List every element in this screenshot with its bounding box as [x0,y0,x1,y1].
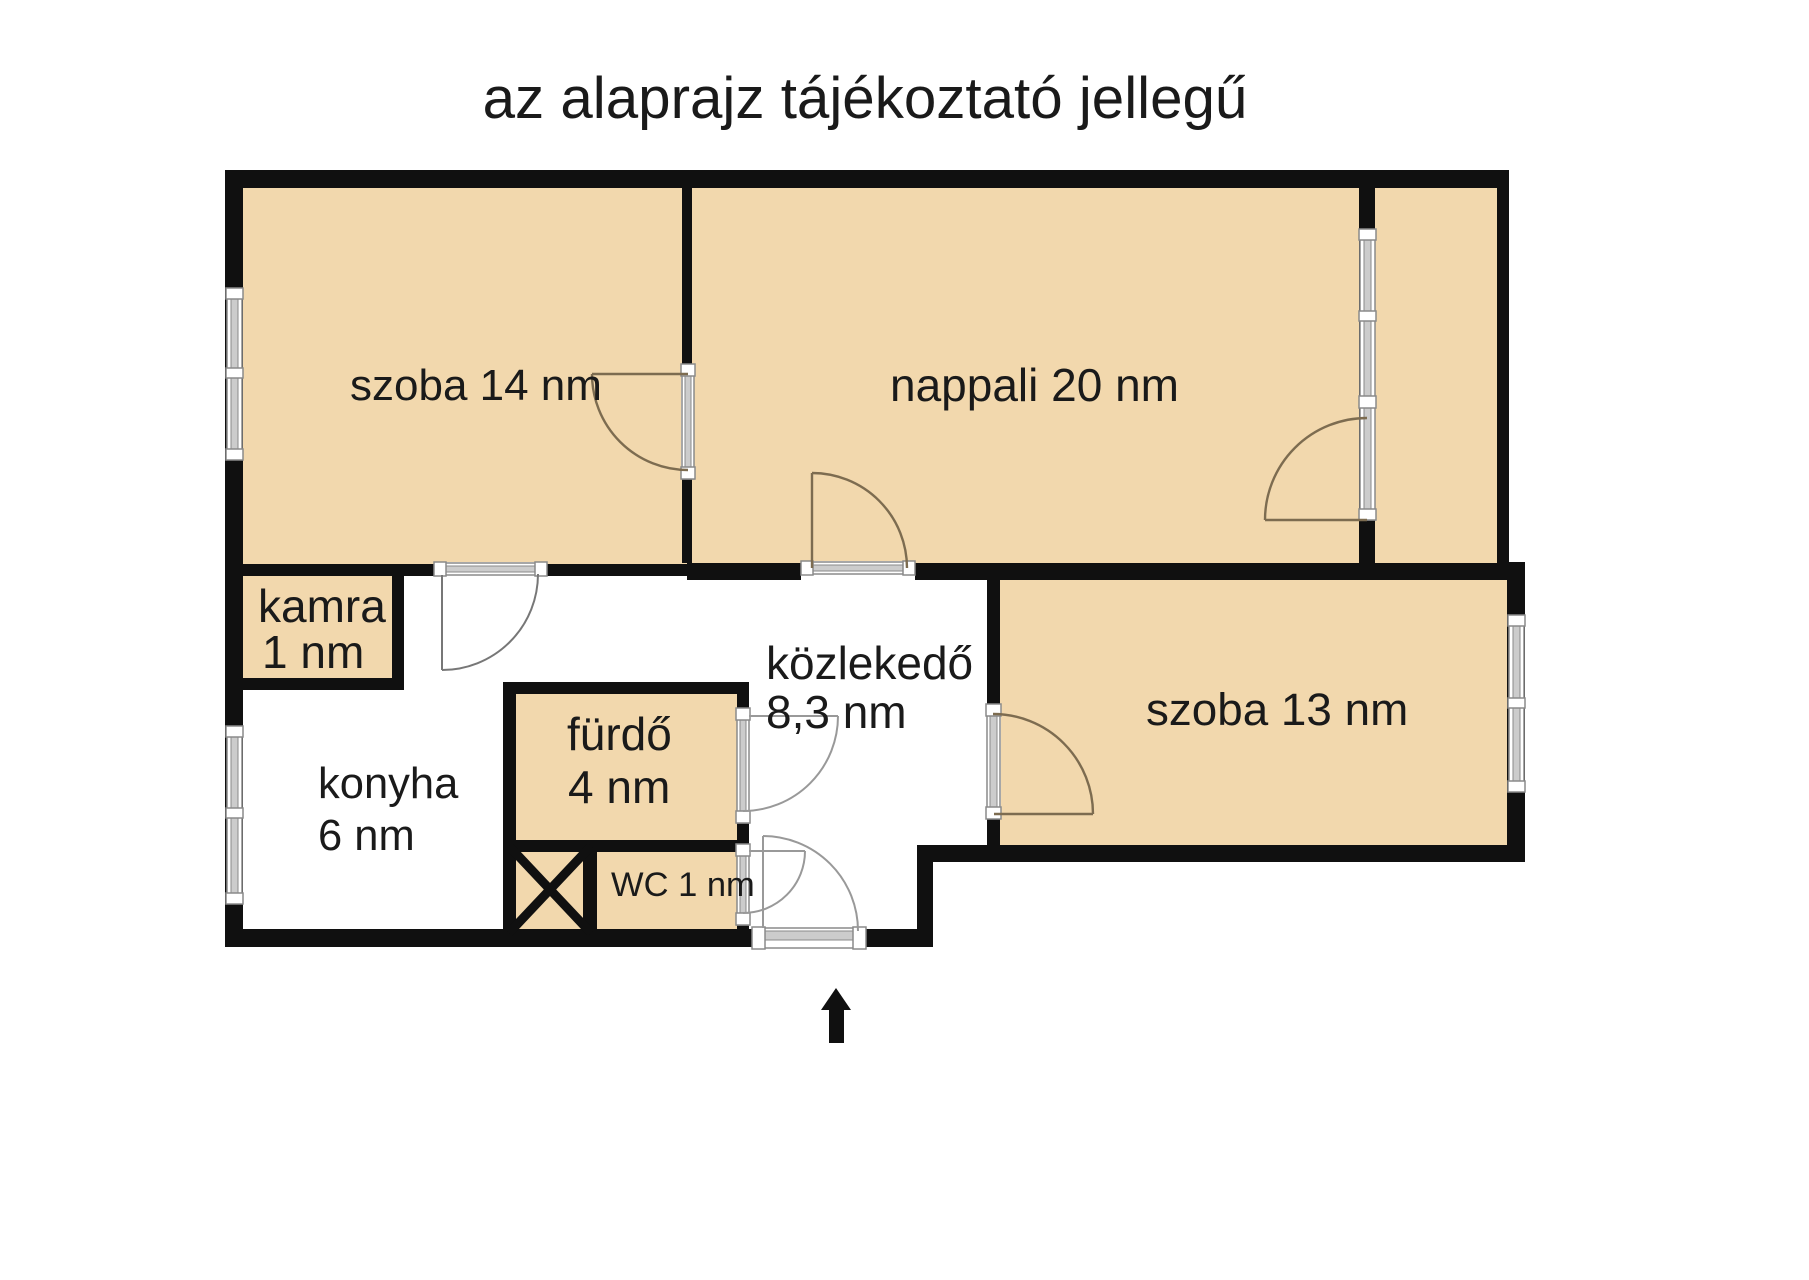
svg-text:WC 1 nm: WC 1 nm [611,866,755,904]
svg-text:kamra: kamra [258,580,386,632]
svg-text:8,3 nm: 8,3 nm [766,686,907,738]
svg-text:4 nm: 4 nm [568,761,670,813]
svg-text:1 nm: 1 nm [262,626,364,678]
svg-text:konyha: konyha [318,760,459,808]
svg-text:az alaprajz tájékoztató jelleg: az alaprajz tájékoztató jellegű [483,66,1248,131]
svg-text:nappali 20 nm: nappali 20 nm [890,359,1179,411]
svg-text:szoba 14 nm: szoba 14 nm [350,361,602,410]
svg-text:fürdő: fürdő [567,708,672,760]
svg-text:közlekedő: közlekedő [766,637,973,689]
svg-text:6 nm: 6 nm [318,812,415,860]
svg-text:szoba 13 nm: szoba 13 nm [1146,684,1408,735]
